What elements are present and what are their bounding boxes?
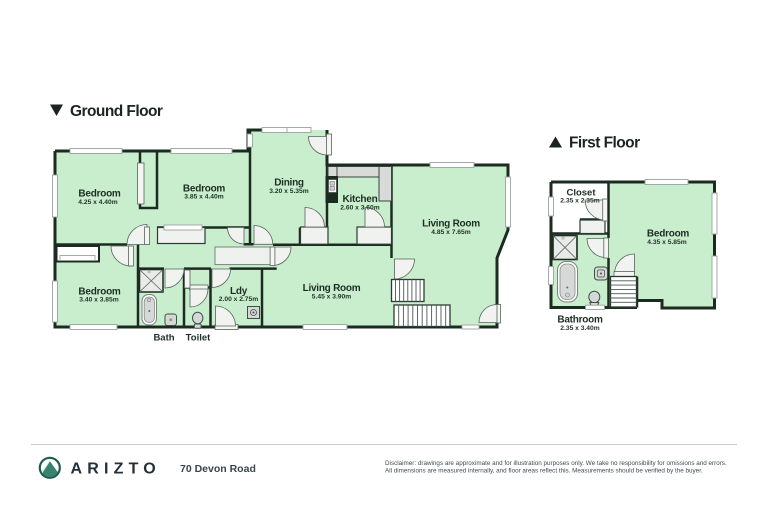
svg-text:Living Room: Living Room <box>303 283 361 294</box>
svg-text:3.85 x 4.40m: 3.85 x 4.40m <box>184 194 223 201</box>
svg-text:3.20 x 5.35m: 3.20 x 5.35m <box>269 188 308 195</box>
svg-text:2.35 x 2.35m: 2.35 x 2.35m <box>560 198 599 205</box>
svg-text:5.45 x 3.90m: 5.45 x 3.90m <box>312 294 351 301</box>
svg-text:2.60 x 3.60m: 2.60 x 3.60m <box>340 205 379 212</box>
svg-text:Ground Floor: Ground Floor <box>70 103 163 120</box>
svg-text:2.00 x 2.75m: 2.00 x 2.75m <box>219 296 258 303</box>
svg-text:Bedroom: Bedroom <box>78 189 121 200</box>
svg-text:3.40 x 3.85m: 3.40 x 3.85m <box>79 297 118 304</box>
svg-text:Kitchen: Kitchen <box>343 194 378 205</box>
svg-text:Bathroom: Bathroom <box>557 315 603 326</box>
svg-text:Bedroom: Bedroom <box>647 229 690 240</box>
svg-text:70 Devon Road: 70 Devon Road <box>180 463 256 475</box>
svg-text:Toilet: Toilet <box>186 333 211 344</box>
svg-text:Bath: Bath <box>153 333 174 344</box>
svg-text:All dimensions are measured in: All dimensions are measured internally, … <box>385 467 703 474</box>
svg-text:2.35 x 3.40m: 2.35 x 3.40m <box>560 325 599 332</box>
svg-text:First Floor: First Floor <box>569 135 640 152</box>
svg-text:4.85 x 7.65m: 4.85 x 7.65m <box>431 229 470 236</box>
svg-text:Living Room: Living Room <box>422 219 480 230</box>
svg-text:4.35 x 5.85m: 4.35 x 5.85m <box>647 239 686 246</box>
svg-text:ARIZTO: ARIZTO <box>71 461 161 478</box>
svg-text:Dining: Dining <box>274 178 304 189</box>
svg-text:4.25 x 4.40m: 4.25 x 4.40m <box>78 199 117 206</box>
svg-text:Disclaimer: drawings are appro: Disclaimer: drawings are approximate and… <box>385 460 727 467</box>
